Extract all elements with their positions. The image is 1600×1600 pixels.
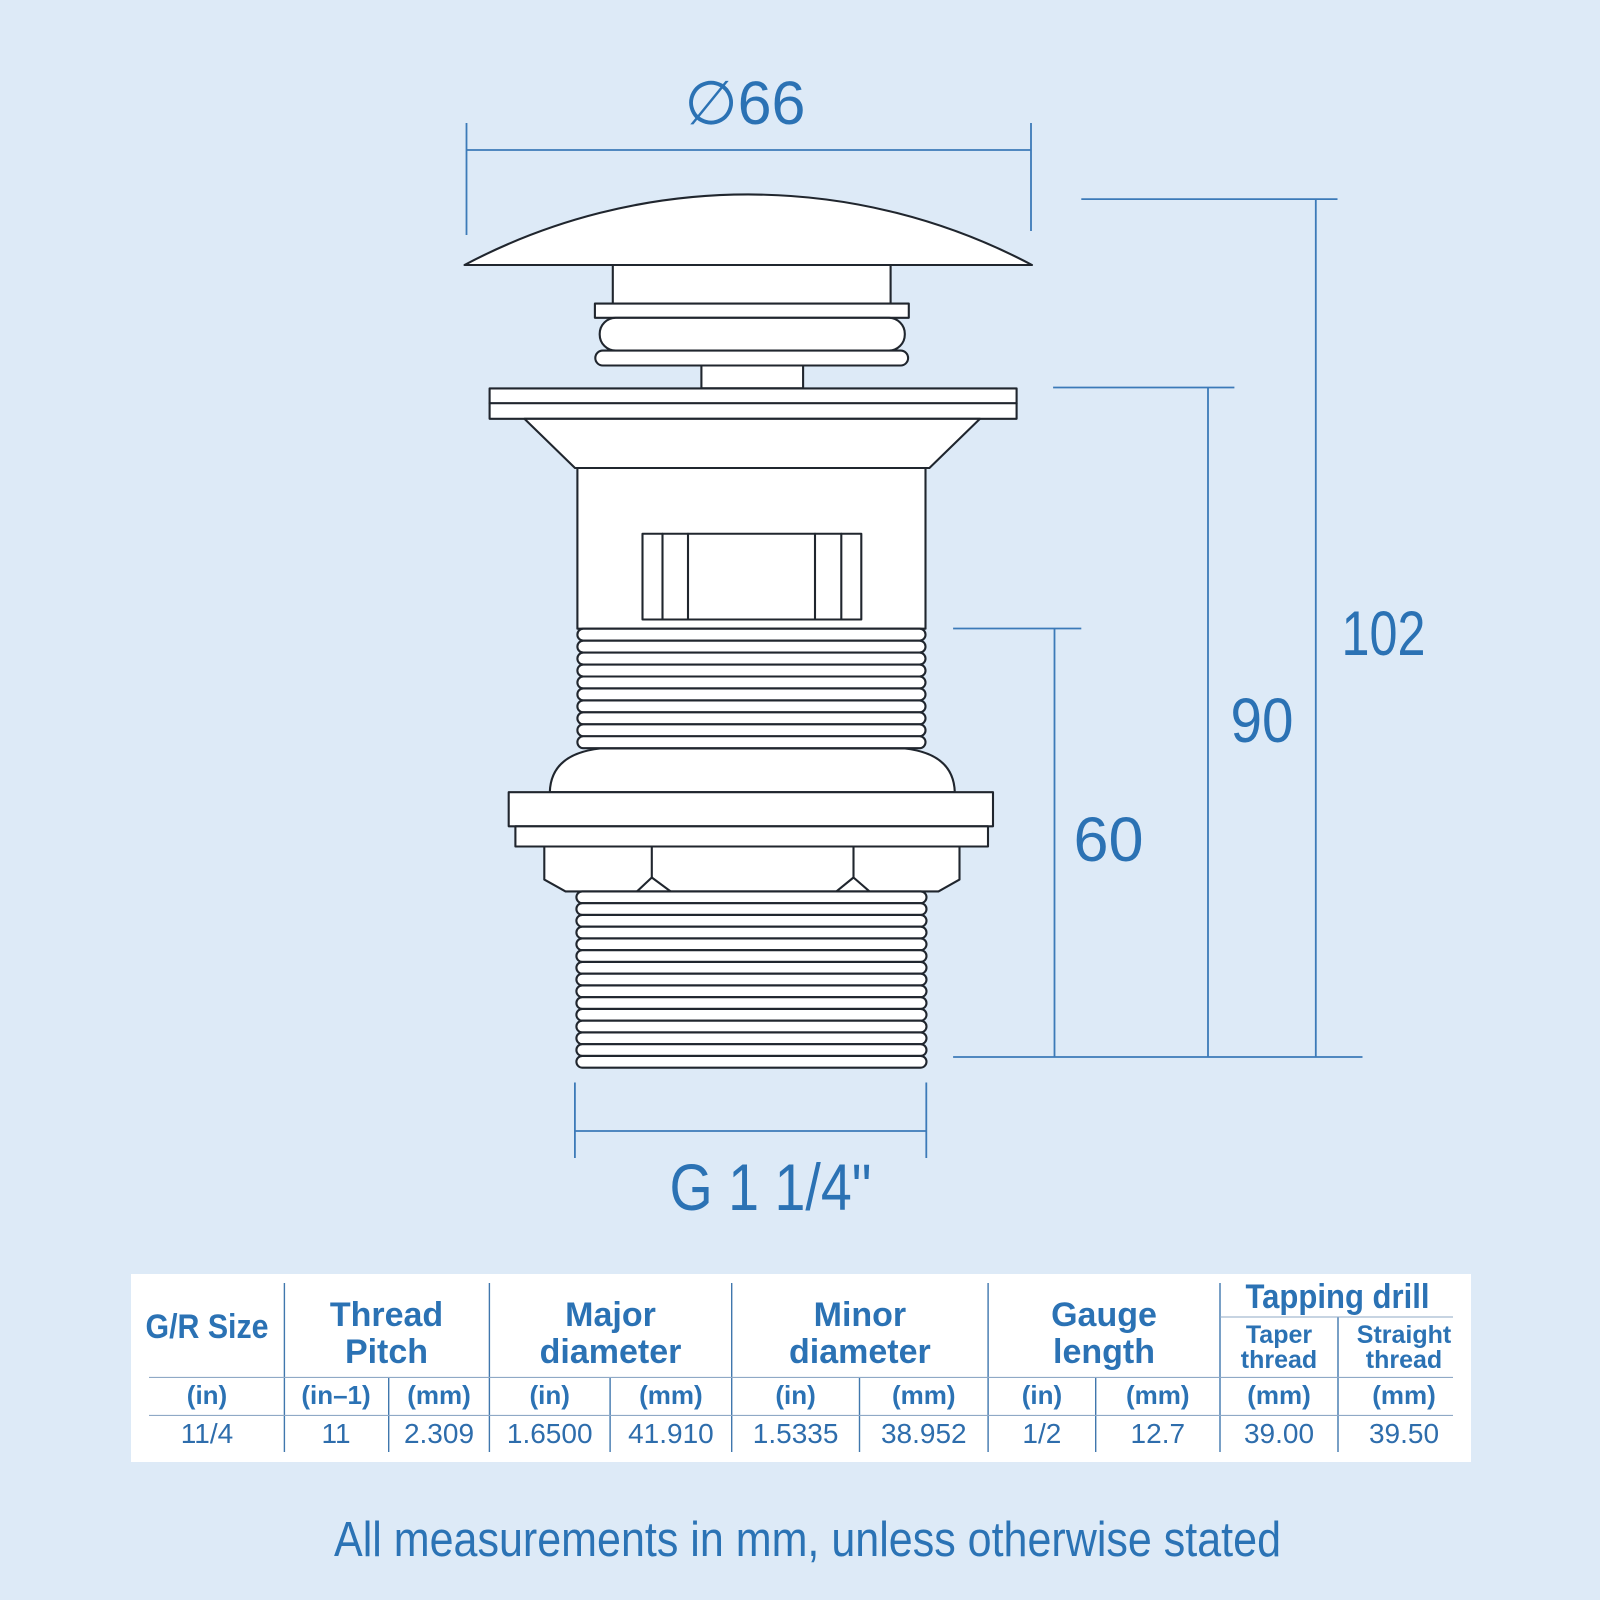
svg-text:length: length xyxy=(1053,1333,1155,1371)
svg-text:Gauge: Gauge xyxy=(1051,1296,1157,1334)
svg-text:Thread: Thread xyxy=(330,1296,443,1334)
svg-text:Minor: Minor xyxy=(814,1296,907,1334)
svg-text:∅66: ∅66 xyxy=(685,69,806,137)
svg-text:41.910: 41.910 xyxy=(628,1418,714,1449)
svg-text:(in): (in) xyxy=(1022,1380,1062,1410)
svg-text:39.00: 39.00 xyxy=(1244,1418,1314,1449)
svg-text:39.50: 39.50 xyxy=(1369,1418,1439,1449)
svg-text:38.952: 38.952 xyxy=(881,1418,967,1449)
svg-text:thread: thread xyxy=(1241,1346,1317,1374)
svg-text:11/4: 11/4 xyxy=(181,1418,233,1449)
svg-text:G/R Size: G/R Size xyxy=(146,1308,269,1346)
svg-text:90: 90 xyxy=(1231,686,1294,756)
svg-text:1.5335: 1.5335 xyxy=(753,1418,839,1449)
svg-text:Major: Major xyxy=(565,1296,656,1334)
svg-text:(mm): (mm) xyxy=(892,1380,956,1410)
svg-text:Straight: Straight xyxy=(1357,1321,1452,1349)
svg-text:60: 60 xyxy=(1073,805,1143,875)
svg-text:Tapping drill: Tapping drill xyxy=(1246,1278,1430,1316)
svg-text:102: 102 xyxy=(1342,599,1426,669)
svg-text:(mm): (mm) xyxy=(1372,1380,1436,1410)
svg-text:diameter: diameter xyxy=(540,1333,682,1371)
svg-text:(in): (in) xyxy=(187,1380,227,1410)
svg-text:1/2: 1/2 xyxy=(1022,1418,1061,1449)
svg-text:(mm): (mm) xyxy=(639,1380,703,1410)
svg-text:G 1 1/4": G 1 1/4" xyxy=(670,1150,872,1224)
svg-text:1.6500: 1.6500 xyxy=(507,1418,593,1449)
svg-text:(mm): (mm) xyxy=(407,1380,471,1410)
svg-text:(in): (in) xyxy=(775,1380,815,1410)
svg-text:Taper: Taper xyxy=(1246,1321,1312,1349)
svg-text:(in): (in) xyxy=(529,1380,569,1410)
svg-text:2.309: 2.309 xyxy=(404,1418,474,1449)
svg-text:(in–1): (in–1) xyxy=(301,1380,370,1410)
svg-text:(mm): (mm) xyxy=(1126,1380,1190,1410)
svg-text:diameter: diameter xyxy=(789,1333,931,1371)
svg-text:12.7: 12.7 xyxy=(1131,1418,1186,1449)
svg-text:All measurements in mm, unless: All measurements in mm, unless otherwise… xyxy=(334,1513,1281,1567)
svg-text:Pitch: Pitch xyxy=(345,1333,428,1371)
svg-text:(mm): (mm) xyxy=(1247,1380,1311,1410)
svg-text:thread: thread xyxy=(1366,1346,1442,1374)
svg-text:11: 11 xyxy=(321,1418,350,1449)
